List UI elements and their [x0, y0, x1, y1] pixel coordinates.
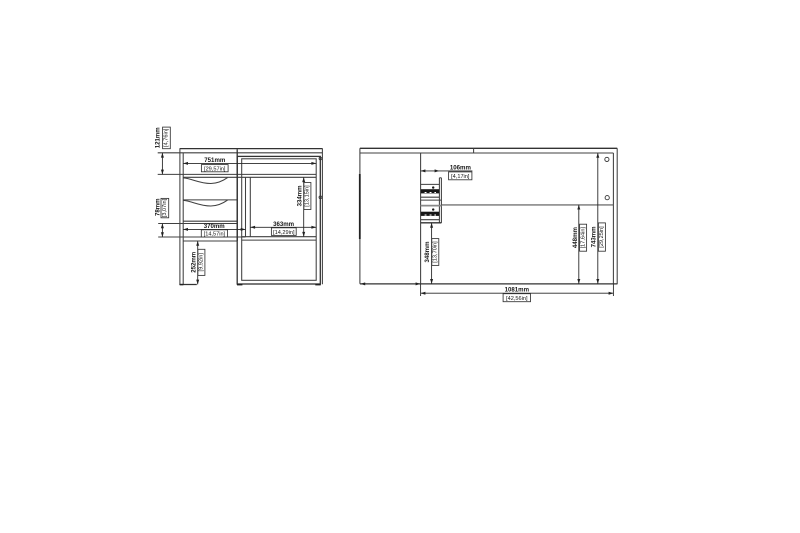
svg-text:[13,70in]: [13,70in] [433, 241, 439, 263]
svg-text:[13,15in]: [13,15in] [305, 185, 311, 207]
svg-text:1081mm: 1081mm [505, 287, 530, 294]
svg-text:370mm: 370mm [204, 223, 226, 230]
svg-text:[29,57in]: [29,57in] [204, 166, 226, 172]
svg-text:[14,29in]: [14,29in] [273, 230, 295, 236]
svg-text:[17,64in]: [17,64in] [580, 227, 586, 249]
svg-text:448mm: 448mm [572, 227, 579, 249]
svg-text:121mm: 121mm [154, 127, 161, 149]
svg-text:[4,76in]: [4,76in] [163, 128, 169, 147]
svg-text:106mm: 106mm [450, 164, 472, 171]
svg-text:751mm: 751mm [204, 157, 226, 164]
svg-text:[3,07in]: [3,07in] [162, 198, 168, 217]
svg-text:252mm: 252mm [190, 251, 197, 273]
svg-text:[29,25in]: [29,25in] [599, 226, 605, 248]
svg-text:[14,57in]: [14,57in] [204, 232, 226, 238]
svg-text:[4,17in]: [4,17in] [451, 174, 470, 180]
svg-text:348mm: 348mm [424, 241, 431, 263]
svg-text:[42,56in]: [42,56in] [506, 296, 528, 302]
svg-text:743mm: 743mm [591, 226, 598, 248]
svg-text:334mm: 334mm [297, 185, 304, 207]
svg-text:[9,92in]: [9,92in] [199, 253, 205, 272]
svg-text:363mm: 363mm [273, 221, 295, 228]
